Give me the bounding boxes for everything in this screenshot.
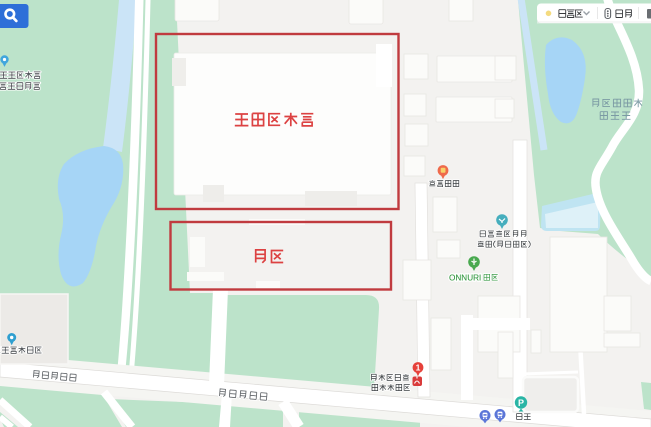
svg-text:1: 1 — [416, 363, 421, 373]
svg-text:P: P — [518, 398, 524, 408]
svg-text:ONNURI: ONNURI — [449, 273, 481, 282]
